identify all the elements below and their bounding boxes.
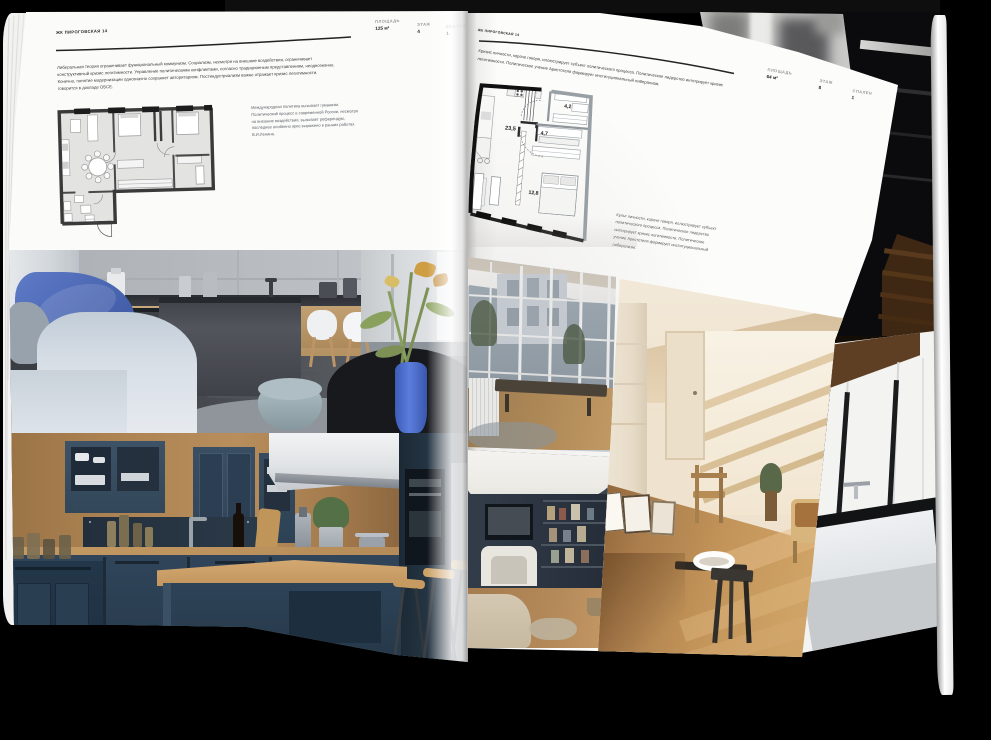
svg-text:12,8: 12,8 [528,190,539,197]
svg-text:4,7: 4,7 [540,131,548,138]
svg-text:23,5: 23,5 [505,126,516,133]
svg-text:4,2: 4,2 [564,104,572,111]
